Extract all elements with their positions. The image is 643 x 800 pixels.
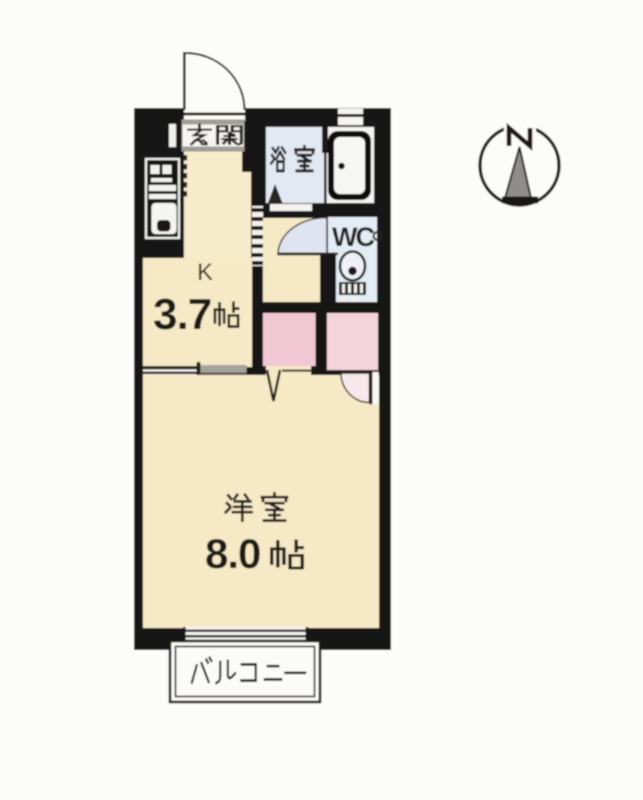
svg-text:3.7: 3.7 [153,290,211,339]
svg-text:WC: WC [332,222,374,252]
svg-text:K: K [197,259,213,286]
svg-text:8.0: 8.0 [205,530,260,577]
